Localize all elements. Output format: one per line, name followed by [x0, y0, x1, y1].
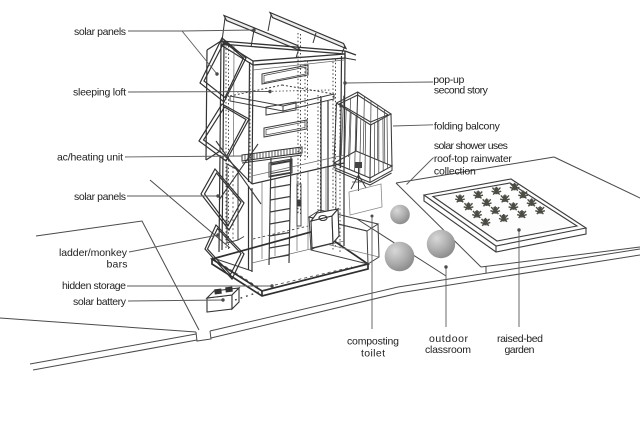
svg-text:hidden storage: hidden storage — [62, 280, 126, 292]
svg-text:sleeping loft: sleeping loft — [73, 87, 126, 99]
svg-text:collection: collection — [434, 165, 476, 177]
svg-text:bars: bars — [107, 259, 128, 271]
svg-text:solar shower uses: solar shower uses — [434, 140, 508, 152]
svg-text:solar panels: solar panels — [74, 191, 126, 203]
svg-text:solar battery: solar battery — [73, 296, 127, 308]
svg-text:toilet: toilet — [361, 348, 385, 360]
svg-text:garden: garden — [505, 344, 535, 356]
svg-text:ladder/monkey: ladder/monkey — [59, 247, 128, 259]
svg-text:classroom: classroom — [425, 344, 471, 356]
svg-text:second story: second story — [434, 85, 489, 97]
svg-text:ac/heating unit: ac/heating unit — [57, 152, 123, 164]
svg-text:solar panels: solar panels — [74, 26, 126, 38]
svg-text:folding balcony: folding balcony — [434, 121, 501, 133]
svg-text:roof-top rainwater: roof-top rainwater — [434, 153, 513, 165]
svg-text:composting: composting — [347, 336, 399, 348]
